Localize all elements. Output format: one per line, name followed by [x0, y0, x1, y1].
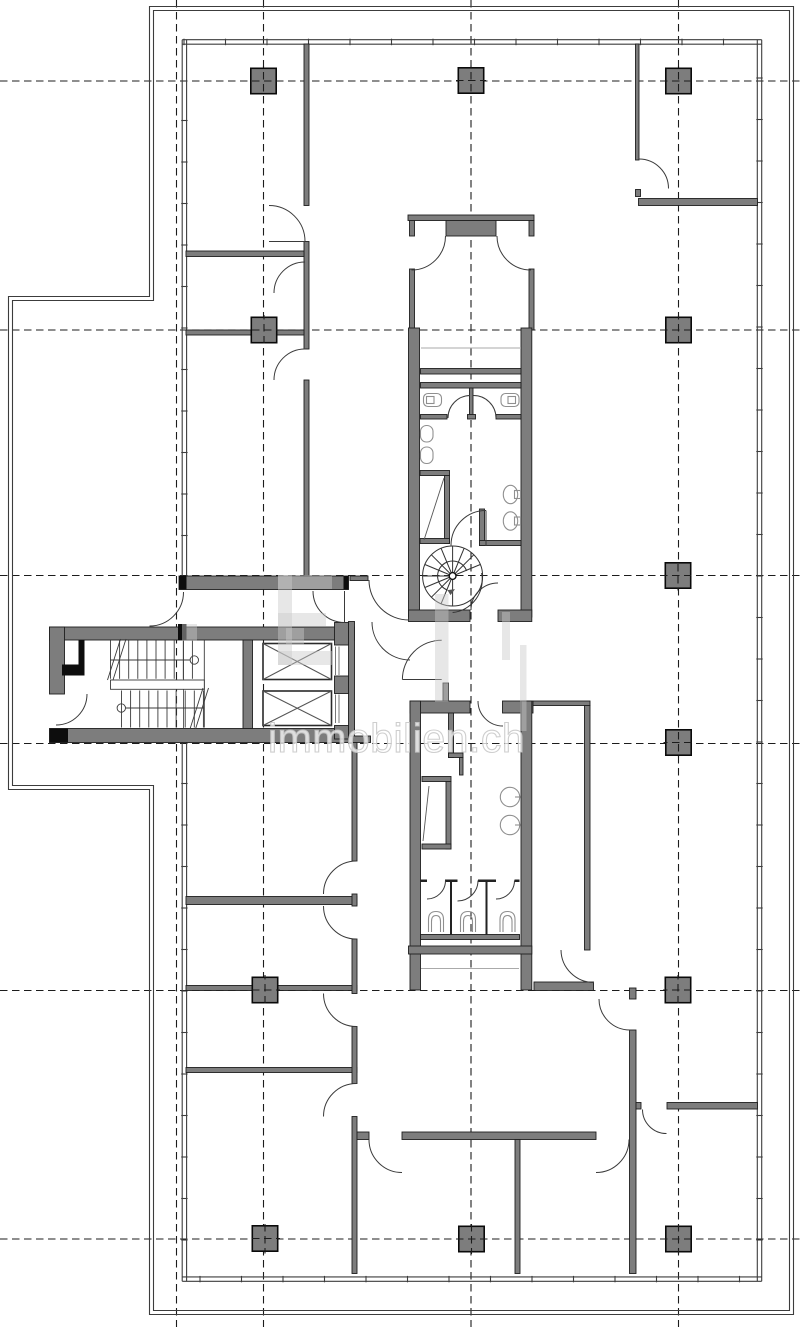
svg-text:immobilien.ch: immobilien.ch: [268, 715, 525, 761]
